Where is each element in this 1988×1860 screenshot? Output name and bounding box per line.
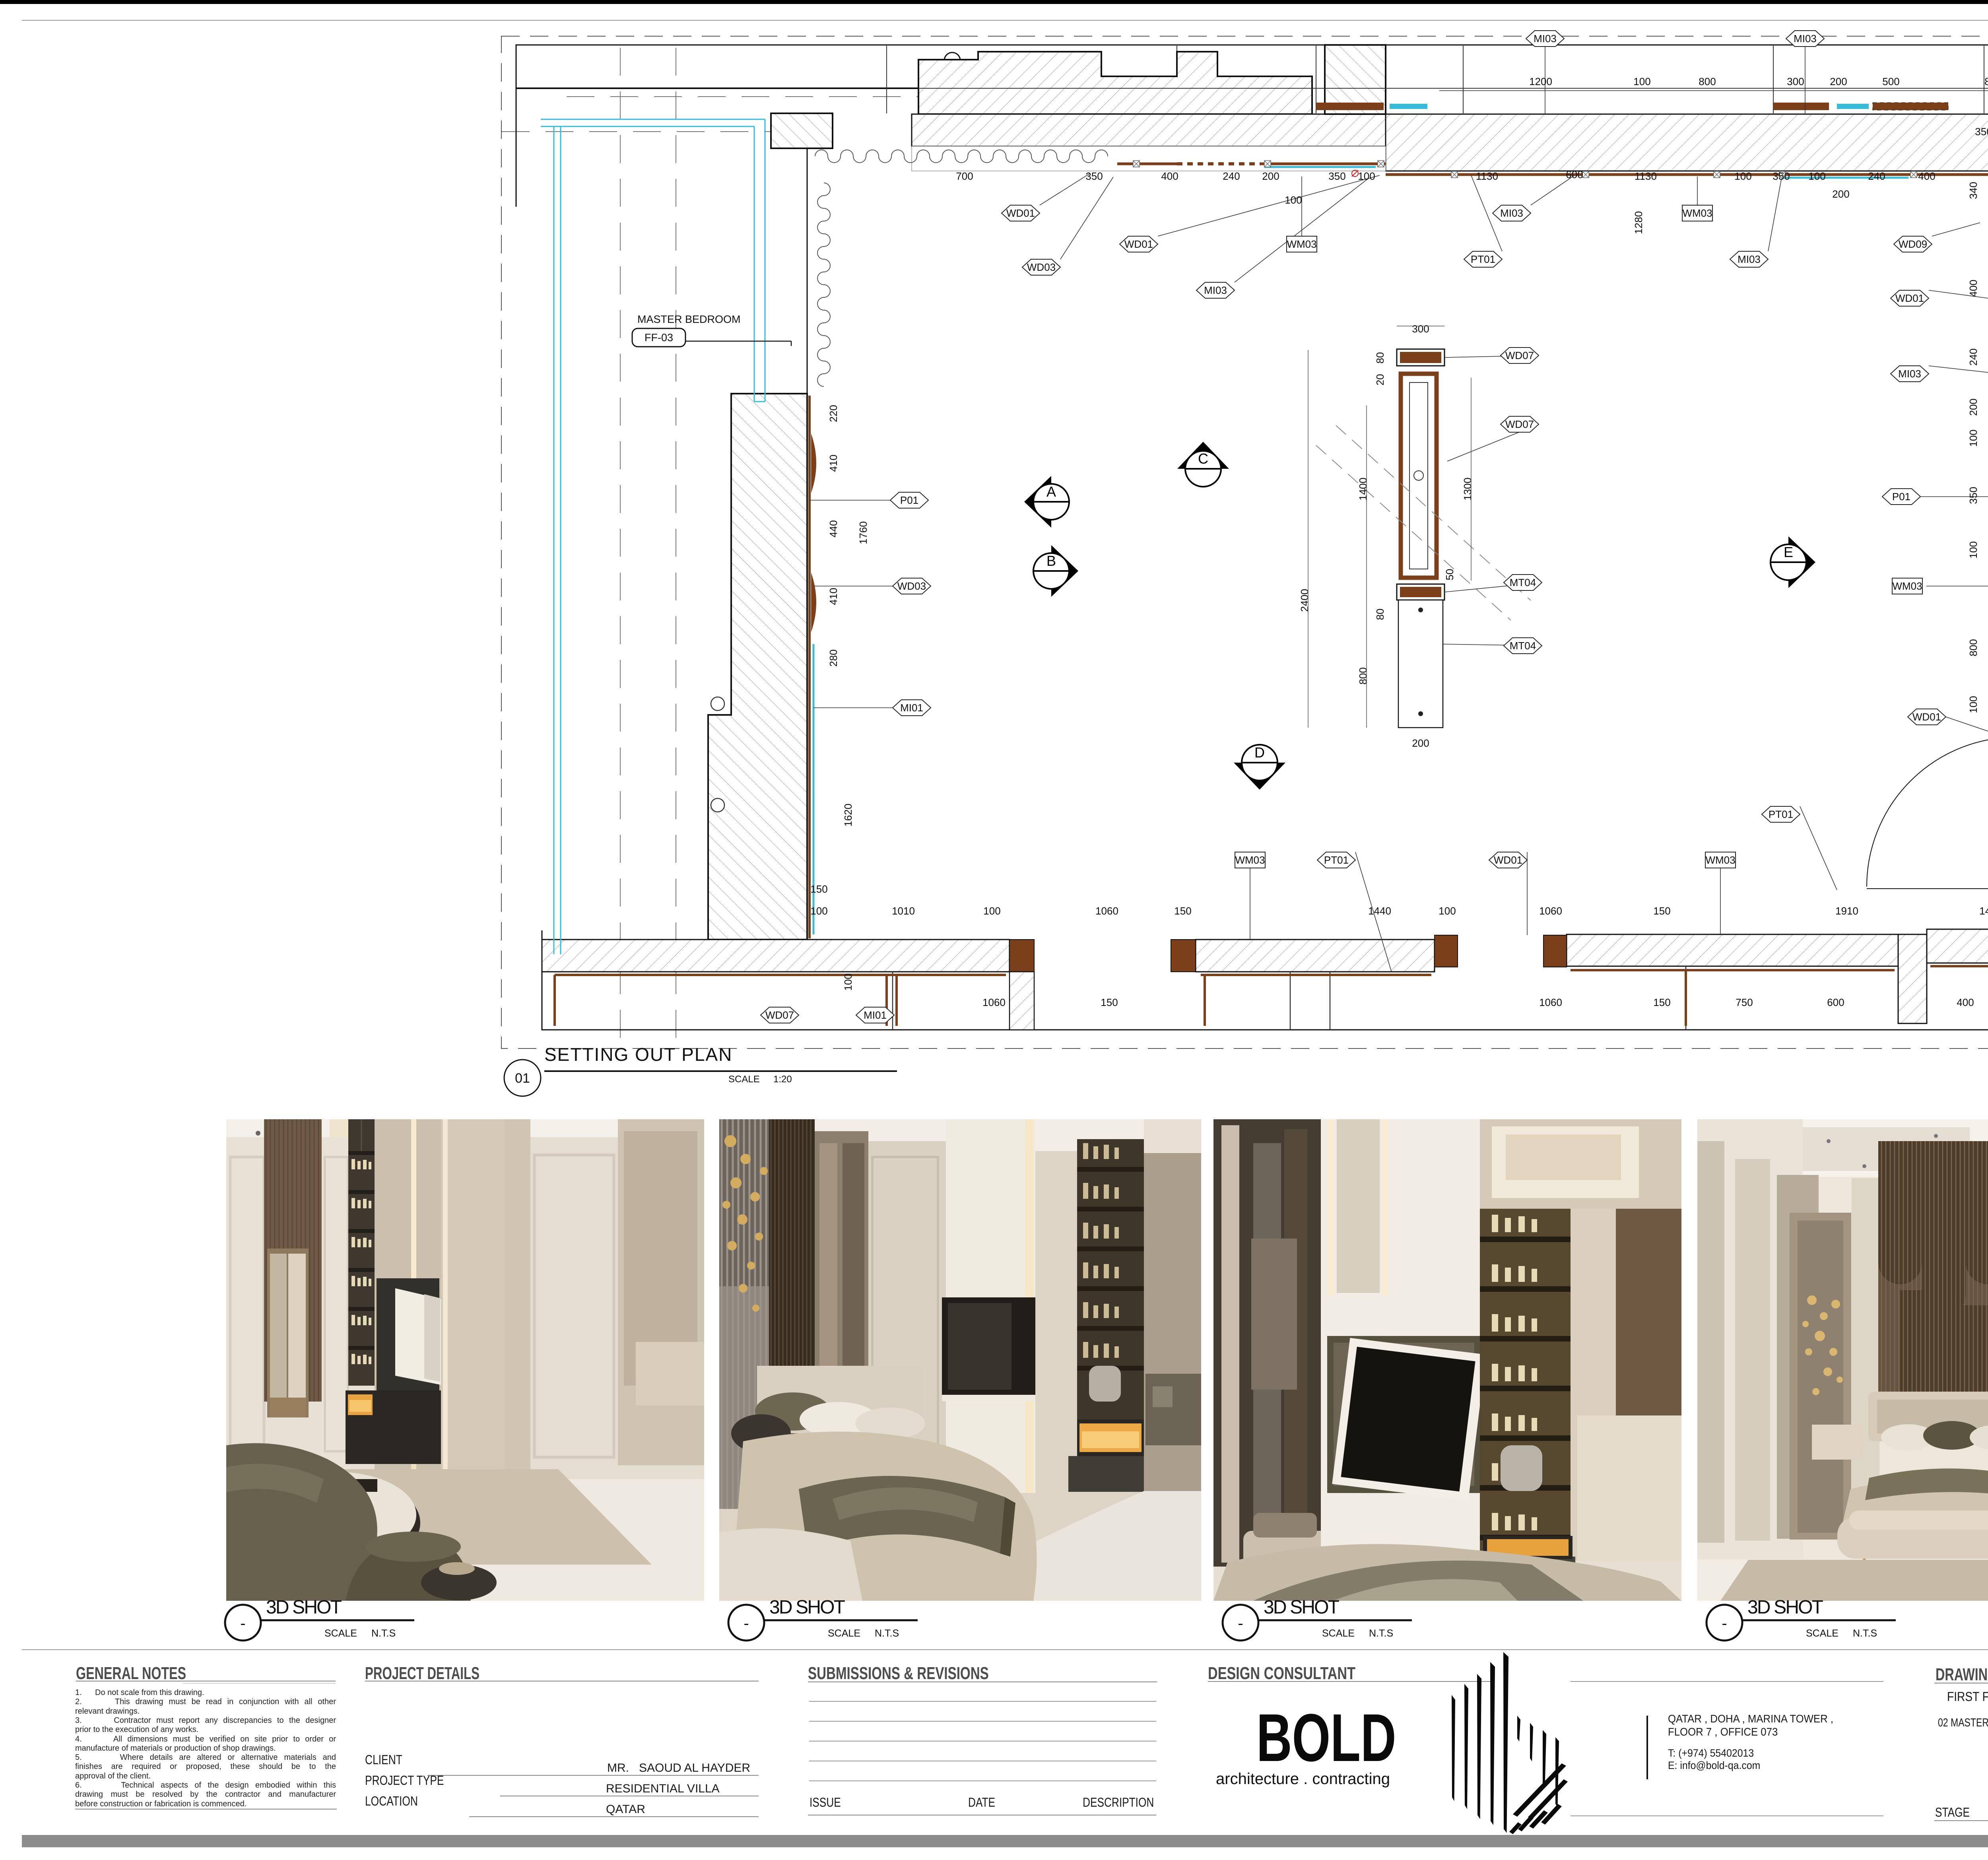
svg-text:20: 20 xyxy=(1374,374,1386,386)
svg-text:WD09: WD09 xyxy=(1899,238,1927,250)
svg-text:1130: 1130 xyxy=(1635,170,1657,182)
svg-text:SCALE: SCALE xyxy=(1322,1628,1355,1639)
svg-text:MT04: MT04 xyxy=(1510,640,1536,652)
svg-text:150: 150 xyxy=(1101,996,1118,1008)
svg-text:100: 100 xyxy=(983,905,1000,917)
svg-text:350: 350 xyxy=(1967,487,1979,504)
svg-text:D: D xyxy=(1254,744,1265,761)
svg-text:220: 220 xyxy=(827,405,839,422)
svg-text:750: 750 xyxy=(1736,996,1753,1008)
svg-text:WD01: WD01 xyxy=(1895,292,1924,304)
svg-text:100: 100 xyxy=(1439,905,1456,917)
svg-text:350: 350 xyxy=(1085,170,1103,182)
svg-text:SCALE: SCALE xyxy=(728,1074,760,1085)
svg-text:1280: 1280 xyxy=(1633,211,1644,234)
svg-text:800: 800 xyxy=(1699,76,1716,87)
svg-text:2400: 2400 xyxy=(1299,589,1310,612)
svg-text:1400: 1400 xyxy=(1357,478,1369,501)
svg-text:150: 150 xyxy=(1653,996,1670,1008)
svg-text:600: 600 xyxy=(1827,996,1844,1008)
svg-text:80: 80 xyxy=(1374,609,1386,620)
svg-text:1060: 1060 xyxy=(1095,905,1118,917)
svg-text:100: 100 xyxy=(1967,429,1979,447)
svg-text:1010: 1010 xyxy=(892,905,915,917)
svg-text:140: 140 xyxy=(1979,905,1988,917)
svg-text:P01: P01 xyxy=(900,494,918,506)
svg-text:SCALE: SCALE xyxy=(324,1628,357,1639)
svg-text:1130: 1130 xyxy=(1476,170,1498,182)
svg-text:MI03: MI03 xyxy=(1500,207,1523,219)
svg-text:MT04: MT04 xyxy=(1510,577,1536,588)
svg-text:PT01: PT01 xyxy=(1471,253,1495,265)
svg-text:1:20: 1:20 xyxy=(773,1074,792,1085)
svg-text:410: 410 xyxy=(827,588,839,605)
svg-text:MI03: MI03 xyxy=(1898,368,1921,380)
svg-text:200: 200 xyxy=(1832,188,1849,200)
svg-text:100: 100 xyxy=(1808,170,1825,182)
svg-text:PT01: PT01 xyxy=(1769,808,1793,820)
svg-text:WD03: WD03 xyxy=(1027,261,1056,273)
svg-text:500: 500 xyxy=(1882,76,1899,87)
svg-text:1300: 1300 xyxy=(1462,478,1474,501)
svg-text:350: 350 xyxy=(1328,170,1345,182)
svg-text:C: C xyxy=(1198,450,1208,467)
svg-text:100: 100 xyxy=(1967,696,1979,713)
svg-text:WD01: WD01 xyxy=(1494,854,1522,866)
svg-text:1060: 1060 xyxy=(1539,905,1562,917)
svg-text:200: 200 xyxy=(1967,398,1979,415)
svg-text:400: 400 xyxy=(1918,170,1935,182)
svg-text:E: E xyxy=(1784,544,1793,560)
svg-text:MI01: MI01 xyxy=(900,702,923,714)
svg-text:3D SHOT: 3D SHOT xyxy=(1747,1597,1823,1618)
svg-text:150: 150 xyxy=(810,883,827,895)
svg-text:WM03: WM03 xyxy=(1287,238,1316,250)
svg-text:100: 100 xyxy=(842,973,854,990)
svg-text:240: 240 xyxy=(1868,170,1885,182)
svg-text:N.T.S: N.T.S xyxy=(371,1628,396,1639)
svg-text:PT01: PT01 xyxy=(1324,854,1349,866)
svg-text:100: 100 xyxy=(1734,170,1751,182)
svg-text:WD07: WD07 xyxy=(765,1009,794,1021)
svg-text:240: 240 xyxy=(1223,170,1240,182)
svg-text:50: 50 xyxy=(1444,569,1456,581)
svg-text:MASTER BEDROOM: MASTER BEDROOM xyxy=(637,313,741,325)
svg-text:350: 350 xyxy=(1975,126,1988,138)
svg-text:N.T.S: N.T.S xyxy=(1369,1628,1393,1639)
svg-text:3D SHOT: 3D SHOT xyxy=(1264,1597,1340,1618)
svg-text:100: 100 xyxy=(1285,194,1302,206)
svg-text:N.T.S: N.T.S xyxy=(875,1628,899,1639)
svg-text:3D SHOT: 3D SHOT xyxy=(266,1597,342,1618)
svg-text:WD01: WD01 xyxy=(1006,207,1035,219)
svg-text:WD01: WD01 xyxy=(1912,711,1941,723)
svg-text:100: 100 xyxy=(1358,170,1375,182)
svg-text:150: 150 xyxy=(1174,905,1191,917)
svg-text:600: 600 xyxy=(1566,169,1583,181)
svg-text:SCALE: SCALE xyxy=(828,1628,860,1639)
svg-text:240: 240 xyxy=(1967,348,1979,365)
svg-text:A: A xyxy=(1046,483,1056,500)
svg-text:1060: 1060 xyxy=(1539,996,1562,1008)
svg-text:800: 800 xyxy=(1967,639,1979,656)
svg-text:200: 200 xyxy=(1830,76,1847,87)
svg-text:MI03: MI03 xyxy=(1204,284,1227,296)
svg-text:-: - xyxy=(744,1615,749,1632)
svg-text:800: 800 xyxy=(1984,76,1988,87)
svg-text:300: 300 xyxy=(1787,76,1804,87)
svg-text:FF-03: FF-03 xyxy=(645,332,673,344)
svg-text:WD07: WD07 xyxy=(1505,418,1534,430)
svg-text:MI03: MI03 xyxy=(1794,33,1817,45)
svg-text:1060: 1060 xyxy=(982,996,1006,1008)
svg-text:WM03: WM03 xyxy=(1682,207,1712,219)
svg-text:P01: P01 xyxy=(1892,491,1910,503)
svg-text:1760: 1760 xyxy=(857,521,869,544)
svg-text:3D SHOT: 3D SHOT xyxy=(769,1597,845,1618)
svg-text:400: 400 xyxy=(1967,280,1979,297)
svg-text:340: 340 xyxy=(1967,182,1979,199)
svg-text:700: 700 xyxy=(956,170,973,182)
svg-text:-: - xyxy=(240,1615,245,1632)
svg-text:410: 410 xyxy=(827,454,839,472)
svg-text:100: 100 xyxy=(810,905,827,917)
svg-text:400: 400 xyxy=(1957,996,1974,1008)
svg-text:B: B xyxy=(1046,553,1056,569)
svg-text:WM03: WM03 xyxy=(1235,854,1265,866)
svg-text:400: 400 xyxy=(1161,170,1178,182)
svg-text:300: 300 xyxy=(1412,323,1429,335)
svg-text:WD07: WD07 xyxy=(1505,349,1534,361)
svg-text:1620: 1620 xyxy=(842,804,854,827)
svg-text:SCALE: SCALE xyxy=(1806,1628,1839,1639)
svg-text:WM03: WM03 xyxy=(1892,580,1922,592)
svg-text:WD03: WD03 xyxy=(897,580,926,592)
svg-text:MI03: MI03 xyxy=(1738,253,1761,265)
svg-text:WM03: WM03 xyxy=(1705,854,1735,866)
svg-text:01: 01 xyxy=(515,1071,530,1086)
svg-text:80: 80 xyxy=(1374,352,1386,364)
svg-text:100: 100 xyxy=(1967,541,1979,558)
svg-text:N.T.S: N.T.S xyxy=(1853,1628,1877,1639)
svg-text:MI01: MI01 xyxy=(864,1009,887,1021)
svg-text:SETTING OUT PLAN: SETTING OUT PLAN xyxy=(544,1044,732,1065)
svg-text:-: - xyxy=(1238,1615,1243,1632)
svg-text:280: 280 xyxy=(827,649,839,666)
svg-text:800: 800 xyxy=(1357,667,1369,684)
svg-text:200: 200 xyxy=(1262,170,1279,182)
svg-text:1200: 1200 xyxy=(1529,76,1552,87)
svg-text:WD01: WD01 xyxy=(1124,238,1153,250)
svg-text:200: 200 xyxy=(1412,737,1429,749)
svg-text:440: 440 xyxy=(827,520,839,537)
svg-text:MI03: MI03 xyxy=(1534,33,1557,45)
svg-text:100: 100 xyxy=(1633,76,1650,87)
svg-text:-: - xyxy=(1722,1615,1727,1632)
svg-text:1440: 1440 xyxy=(1368,905,1391,917)
svg-text:1910: 1910 xyxy=(1835,905,1858,917)
svg-text:350: 350 xyxy=(1773,170,1790,182)
svg-text:150: 150 xyxy=(1653,905,1670,917)
